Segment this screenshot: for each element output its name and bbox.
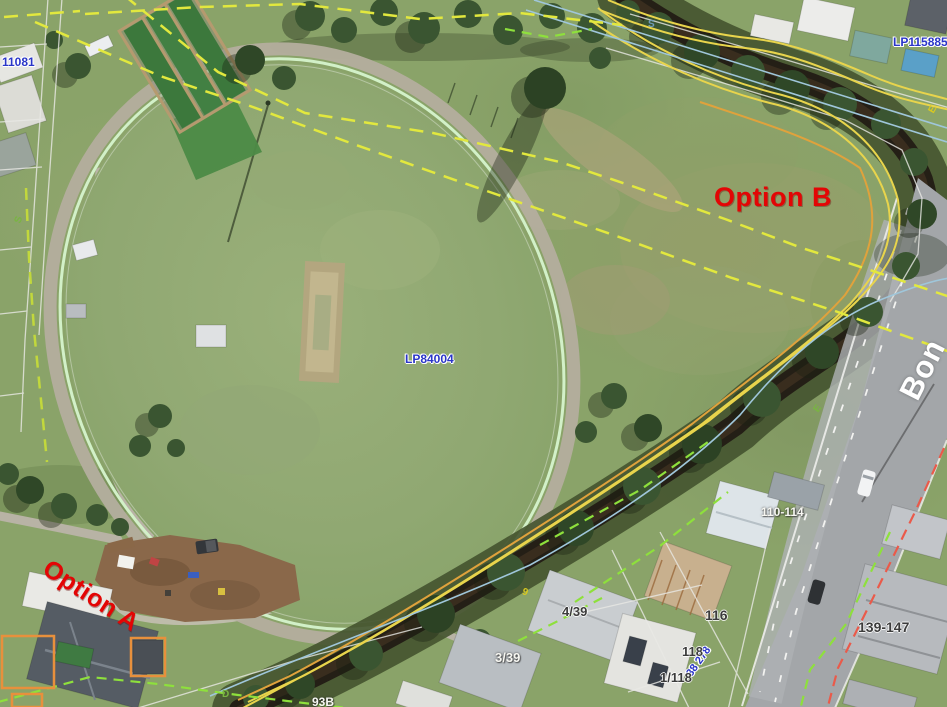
aerial-map: 11081 LP115885 LP84004 38 278 Option B O… [0,0,947,707]
play-equipment [188,572,199,578]
play-equipment [218,588,225,595]
option-b-label: Option B [714,184,832,211]
boundary-dashed-left [26,188,47,462]
street-number-3-39: 3/39 [495,651,520,664]
house-roof [0,133,36,178]
plan-label-lp115885: LP115885 [893,36,947,48]
street-number-1-118: 1/118 [660,671,692,684]
street-number-110-114: 110-114 [761,506,804,518]
shed [196,325,226,347]
house-roof [797,0,855,41]
cricket-pitch [299,261,345,383]
street-number-116: 116 [705,608,728,622]
shed [66,304,86,318]
survey-letter-d: D [222,690,229,700]
house-roof [905,0,947,34]
small-shed [133,640,163,674]
street-number-139-147: 139-147 [858,620,909,634]
shed [850,30,893,63]
parcel-label-11081: 11081 [2,56,35,68]
street-number-118: 118 [682,645,703,658]
survey-letter-s-top: S [648,20,655,30]
street-number-93b: 93B [312,696,334,707]
aerial-scene [0,0,947,707]
street-number-4-39: 4/39 [562,605,587,618]
plan-label-lp84004: LP84004 [405,353,454,365]
swimming-pool [901,49,939,78]
